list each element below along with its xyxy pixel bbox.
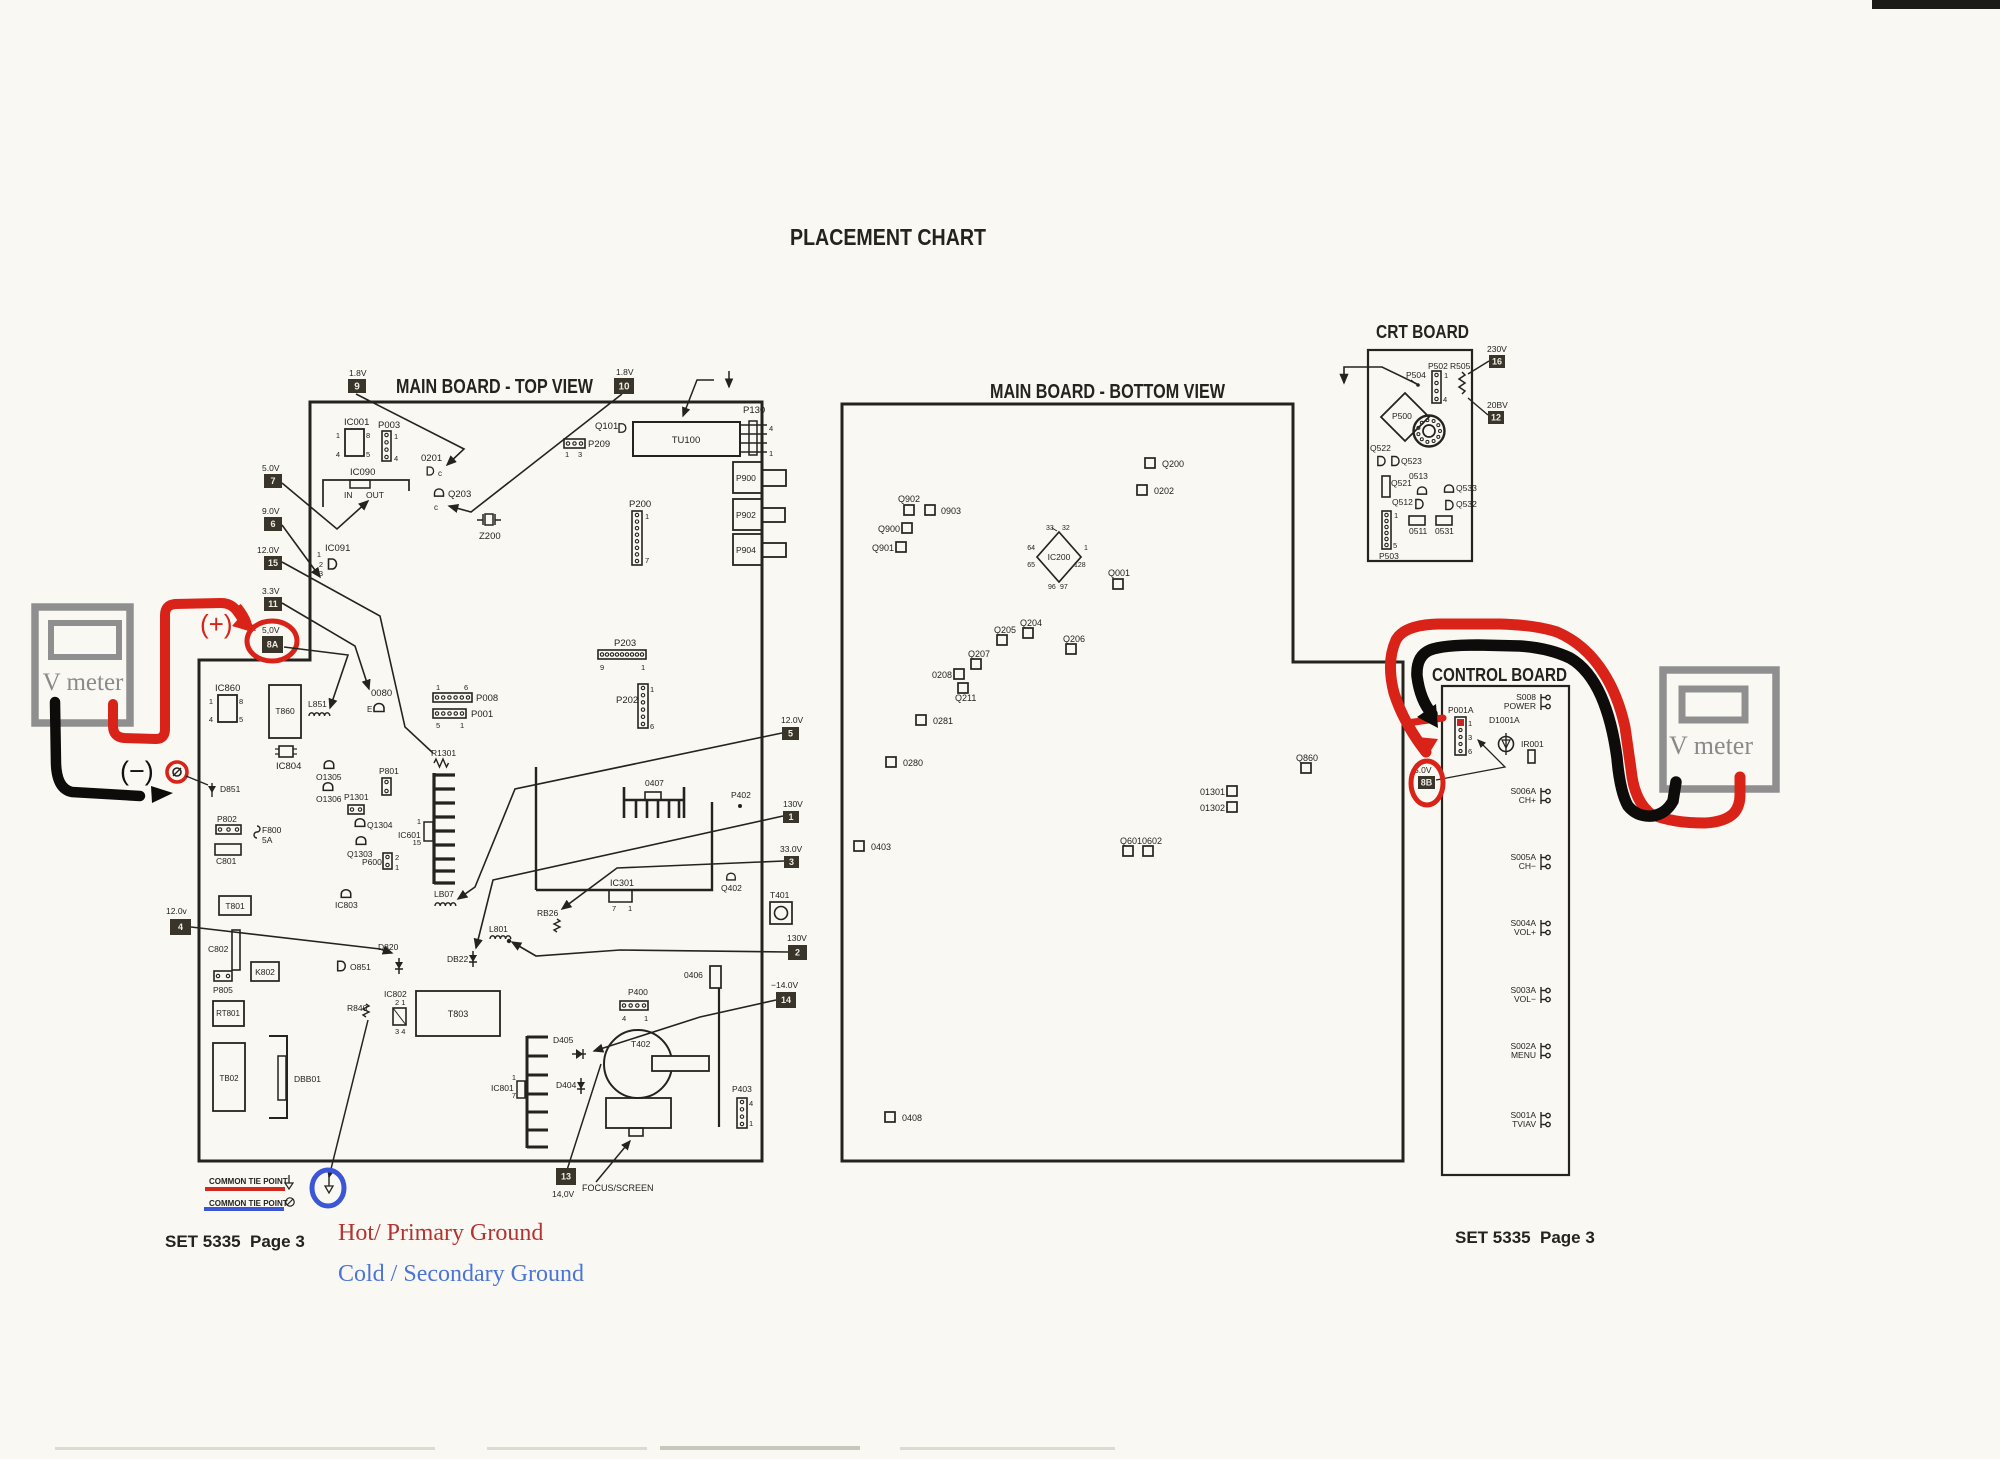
svg-text:6: 6 [1468,747,1472,756]
svg-text:D1001A: D1001A [1489,715,1520,725]
svg-text:P001: P001 [471,709,493,720]
svg-text:IC803: IC803 [335,900,358,910]
svg-text:4: 4 [749,1099,753,1108]
svg-text:V meter: V meter [1669,731,1753,760]
svg-text:11: 11 [268,599,278,609]
svg-text:VOL−: VOL− [1514,994,1536,1004]
svg-text:Q204: Q204 [1020,618,1042,628]
svg-text:P502: P502 [1428,361,1448,371]
svg-text:64: 64 [1027,545,1035,552]
svg-text:01301: 01301 [1200,787,1225,797]
svg-text:DBB01: DBB01 [294,1074,321,1084]
svg-text:0201: 0201 [421,453,442,464]
svg-text:4: 4 [769,424,773,433]
svg-text:P500: P500 [1392,411,1412,421]
svg-text:1: 1 [512,1073,516,1082]
svg-text:Q523: Q523 [1401,456,1422,466]
svg-text:c: c [438,469,442,478]
svg-text:130V: 130V [783,799,803,809]
svg-text:1: 1 [644,1014,648,1023]
svg-text:9.0V: 9.0V [262,506,280,516]
svg-text:230V: 230V [1487,344,1507,354]
svg-text:POWER: POWER [1504,701,1536,711]
svg-text:4: 4 [178,922,183,932]
svg-text:MAIN BOARD - TOP VIEW: MAIN BOARD - TOP VIEW [396,376,593,398]
svg-text:O851: O851 [350,962,371,972]
svg-text:MENU: MENU [1511,1050,1536,1060]
svg-text:130V: 130V [787,933,807,943]
svg-text:1: 1 [317,550,321,559]
svg-text:1: 1 [395,863,399,872]
svg-text:1: 1 [628,904,632,913]
svg-text:7: 7 [512,1091,516,1100]
svg-text:1: 1 [565,450,569,459]
svg-text:Q206: Q206 [1063,634,1085,644]
svg-text:IC860: IC860 [215,683,240,694]
svg-text:Q203: Q203 [448,489,471,500]
svg-text:D820: D820 [378,942,399,952]
svg-text:C801: C801 [216,856,237,866]
svg-text:10: 10 [618,382,630,393]
svg-text:14: 14 [781,995,791,1005]
svg-text:Q900: Q900 [878,524,900,534]
svg-text:P802: P802 [217,814,237,824]
svg-text:Q601: Q601 [1120,836,1142,846]
svg-text:IC001: IC001 [344,417,369,428]
svg-text:4: 4 [622,1014,626,1023]
svg-text:2: 2 [795,948,800,958]
svg-text:0403: 0403 [871,842,891,852]
svg-text:6: 6 [650,722,654,731]
svg-text:P900: P900 [736,473,756,483]
svg-text:IC090: IC090 [350,467,375,478]
svg-text:Q902: Q902 [898,494,920,504]
svg-text:16: 16 [1492,357,1502,367]
svg-text:P904: P904 [736,545,756,555]
svg-text:12.0v: 12.0v [166,906,188,916]
svg-text:IC601: IC601 [398,830,421,840]
svg-text:0408: 0408 [902,1113,922,1123]
svg-text:D405: D405 [553,1035,574,1045]
svg-text:01302: 01302 [1200,803,1225,813]
svg-text:SET 5335: SET 5335 [165,1232,241,1251]
svg-text:V meter: V meter [43,669,124,696]
svg-text:P801: P801 [379,766,399,776]
svg-text:Q101: Q101 [595,421,618,432]
svg-text:12.0V: 12.0V [781,715,804,725]
svg-text:3: 3 [789,857,794,867]
svg-text:VOL+: VOL+ [1514,927,1536,937]
svg-text:Page 3: Page 3 [1540,1228,1595,1247]
svg-text:IC091: IC091 [325,543,350,554]
svg-text:(+): (+) [200,609,233,639]
svg-text:IC301: IC301 [610,878,634,888]
svg-text:R505: R505 [1450,361,1471,371]
svg-text:Q532: Q532 [1456,499,1477,509]
svg-text:0903: 0903 [941,506,961,516]
svg-text:C802: C802 [208,944,229,954]
svg-text:97: 97 [1060,584,1068,591]
svg-text:5,0V: 5,0V [262,625,280,635]
svg-text:Q860: Q860 [1296,753,1318,763]
svg-text:128: 128 [1074,562,1086,569]
svg-text:CRT BOARD: CRT BOARD [1376,322,1469,342]
svg-text:K802: K802 [255,967,275,977]
svg-text:Q901: Q901 [872,543,894,553]
svg-text:1: 1 [650,685,654,694]
svg-text:15: 15 [268,558,278,568]
svg-text:Q200: Q200 [1162,459,1184,469]
svg-text:0406: 0406 [684,970,703,980]
svg-text:D404: D404 [556,1080,577,1090]
svg-text:1: 1 [460,721,464,730]
svg-text:P130: P130 [743,405,765,416]
svg-text:2 1: 2 1 [395,998,405,1007]
svg-text:8B: 8B [1421,778,1433,788]
svg-text:0280: 0280 [903,758,923,768]
svg-text:L851: L851 [308,699,327,709]
svg-text:Q001: Q001 [1108,568,1130,578]
svg-text:0080: 0080 [371,688,392,699]
svg-text:MAIN BOARD - BOTTOM VIEW: MAIN BOARD - BOTTOM VIEW [990,381,1225,403]
svg-text:1.8V: 1.8V [349,368,367,378]
svg-text:33.0V: 33.0V [780,844,803,854]
svg-text:P902: P902 [736,510,756,520]
svg-text:TB02: TB02 [219,1074,239,1083]
svg-text:8: 8 [239,697,243,706]
svg-text:PLACEMENT CHART: PLACEMENT CHART [790,224,986,250]
svg-text:TU100: TU100 [672,435,701,446]
svg-text:CH+: CH+ [1519,795,1536,805]
svg-text:E: E [367,705,372,714]
svg-text:14,0V: 14,0V [552,1189,575,1199]
svg-text:DB22: DB22 [447,954,469,964]
svg-text:P200: P200 [629,499,651,510]
svg-text:96: 96 [1048,584,1056,591]
svg-text:7: 7 [645,556,649,565]
svg-text:P003: P003 [378,420,400,431]
svg-text:1: 1 [1468,719,1472,728]
svg-text:7: 7 [612,904,616,913]
svg-text:TVIAV: TVIAV [1512,1119,1536,1129]
svg-text:0281: 0281 [933,716,953,726]
svg-text:1: 1 [1084,545,1088,552]
svg-text:5A: 5A [262,835,273,845]
svg-text:c: c [434,503,438,512]
svg-text:T402: T402 [631,1039,651,1049]
svg-text:IR001: IR001 [1521,739,1544,749]
svg-text:P504: P504 [1406,370,1426,380]
svg-text:P402: P402 [731,790,751,800]
svg-text:F800: F800 [262,825,282,835]
svg-text:0202: 0202 [1154,486,1174,496]
svg-text:T401: T401 [770,890,790,900]
svg-text:1: 1 [336,431,340,440]
svg-text:0531: 0531 [1435,526,1454,536]
svg-text:Q533: Q533 [1456,483,1477,493]
svg-text:Hot/ Primary Ground: Hot/ Primary Ground [338,1220,543,1246]
svg-text:3: 3 [578,450,582,459]
svg-text:P403: P403 [732,1084,752,1094]
svg-text:O1306: O1306 [316,794,342,804]
svg-text:4: 4 [209,715,213,724]
svg-text:Q402: Q402 [721,883,742,893]
svg-text:0511: 0511 [1409,526,1428,536]
svg-text:CONTROL BOARD: CONTROL BOARD [1432,665,1567,685]
svg-text:20BV: 20BV [1487,400,1508,410]
svg-text:4: 4 [394,454,398,463]
svg-text:1: 1 [436,683,440,692]
svg-text:P203: P203 [614,638,636,649]
svg-text:T801: T801 [225,901,245,911]
svg-text:P805: P805 [213,985,233,995]
svg-text:3 4: 3 4 [395,1027,405,1036]
svg-text:OUT: OUT [366,490,384,500]
svg-text:Cold / Secondary Ground: Cold / Secondary Ground [338,1261,584,1287]
svg-text:L801: L801 [489,924,508,934]
svg-text:−14.0V: −14.0V [771,980,799,990]
svg-text:P001A: P001A [1448,705,1474,715]
svg-text:0602: 0602 [1142,836,1162,846]
svg-text:P503: P503 [1379,551,1399,561]
svg-text:T860: T860 [275,706,295,716]
svg-text:1: 1 [394,432,398,441]
svg-text:IC804: IC804 [276,761,301,772]
svg-text:Q207: Q207 [968,649,990,659]
svg-text:5.0V: 5.0V [262,463,280,473]
svg-text:O1305: O1305 [316,772,342,782]
svg-text:IC801: IC801 [491,1083,514,1093]
svg-text:0208: 0208 [932,670,952,680]
svg-text:12: 12 [1491,413,1501,423]
svg-text:12.0V: 12.0V [257,545,280,555]
svg-text:8: 8 [366,431,370,440]
svg-text:1: 1 [645,512,649,521]
svg-text:5: 5 [1393,541,1397,550]
svg-text:(−): (−) [120,756,154,786]
svg-text:Page 3: Page 3 [250,1232,305,1251]
svg-text:IN: IN [344,490,353,500]
svg-text:Q1303: Q1303 [347,849,373,859]
svg-text:Q512: Q512 [1392,497,1413,507]
svg-text:D851: D851 [220,784,241,794]
svg-text:1: 1 [641,663,645,672]
svg-text:6: 6 [270,519,275,529]
svg-text:Q205: Q205 [994,625,1016,635]
svg-text:9: 9 [600,663,604,672]
svg-text:Q211: Q211 [955,693,976,703]
svg-text:2: 2 [395,853,399,862]
svg-text:4: 4 [1443,395,1447,404]
svg-text:0513: 0513 [1409,471,1428,481]
svg-text:P209: P209 [588,439,610,450]
svg-text:LB07: LB07 [434,889,454,899]
svg-text:65: 65 [1027,562,1035,569]
svg-text:1: 1 [1444,371,1448,380]
svg-text:1: 1 [788,812,793,822]
svg-text:5: 5 [239,715,243,724]
svg-text:R1301: R1301 [431,748,456,758]
svg-text:1.8V: 1.8V [616,367,634,377]
svg-text:9: 9 [354,382,360,393]
svg-text:P1301: P1301 [344,792,369,802]
svg-text:COMMON TIE POINT: COMMON TIE POINT [209,1199,288,1208]
svg-text:5: 5 [788,729,793,739]
svg-text:P008: P008 [476,693,498,704]
svg-text:1: 1 [769,449,773,458]
svg-text:P202: P202 [616,695,638,706]
svg-text:5: 5 [436,721,440,730]
svg-text:3: 3 [1468,733,1472,742]
svg-text:2: 2 [319,560,323,569]
svg-text:8A: 8A [267,640,279,650]
svg-text:RB26: RB26 [537,908,559,918]
svg-text:0407: 0407 [645,778,664,788]
svg-text:4: 4 [336,450,340,459]
svg-text:RT801: RT801 [216,1009,240,1018]
svg-text:Q1304: Q1304 [367,820,393,830]
svg-text:COMMON TIE POINT: COMMON TIE POINT [209,1177,288,1186]
svg-text:1: 1 [417,817,421,826]
svg-text:3: 3 [319,569,323,578]
svg-text:T803: T803 [448,1009,469,1019]
svg-text:P400: P400 [628,987,648,997]
svg-text:IC200: IC200 [1048,552,1071,562]
svg-text:5: 5 [366,450,370,459]
svg-text:1: 1 [1394,511,1398,520]
svg-text:1: 1 [749,1119,753,1128]
svg-text:7: 7 [270,476,275,486]
svg-text:FOCUS/SCREEN: FOCUS/SCREEN [582,1183,654,1193]
svg-text:13: 13 [561,1172,571,1182]
svg-text:1: 1 [209,697,213,706]
svg-text:Z200: Z200 [479,531,501,542]
svg-text:SET 5335: SET 5335 [1455,1228,1531,1247]
svg-text:Q522: Q522 [1370,443,1391,453]
svg-text:32: 32 [1062,525,1070,532]
svg-text:CH−: CH− [1519,861,1536,871]
svg-text:3.3V: 3.3V [262,586,280,596]
svg-text:6: 6 [464,683,468,692]
